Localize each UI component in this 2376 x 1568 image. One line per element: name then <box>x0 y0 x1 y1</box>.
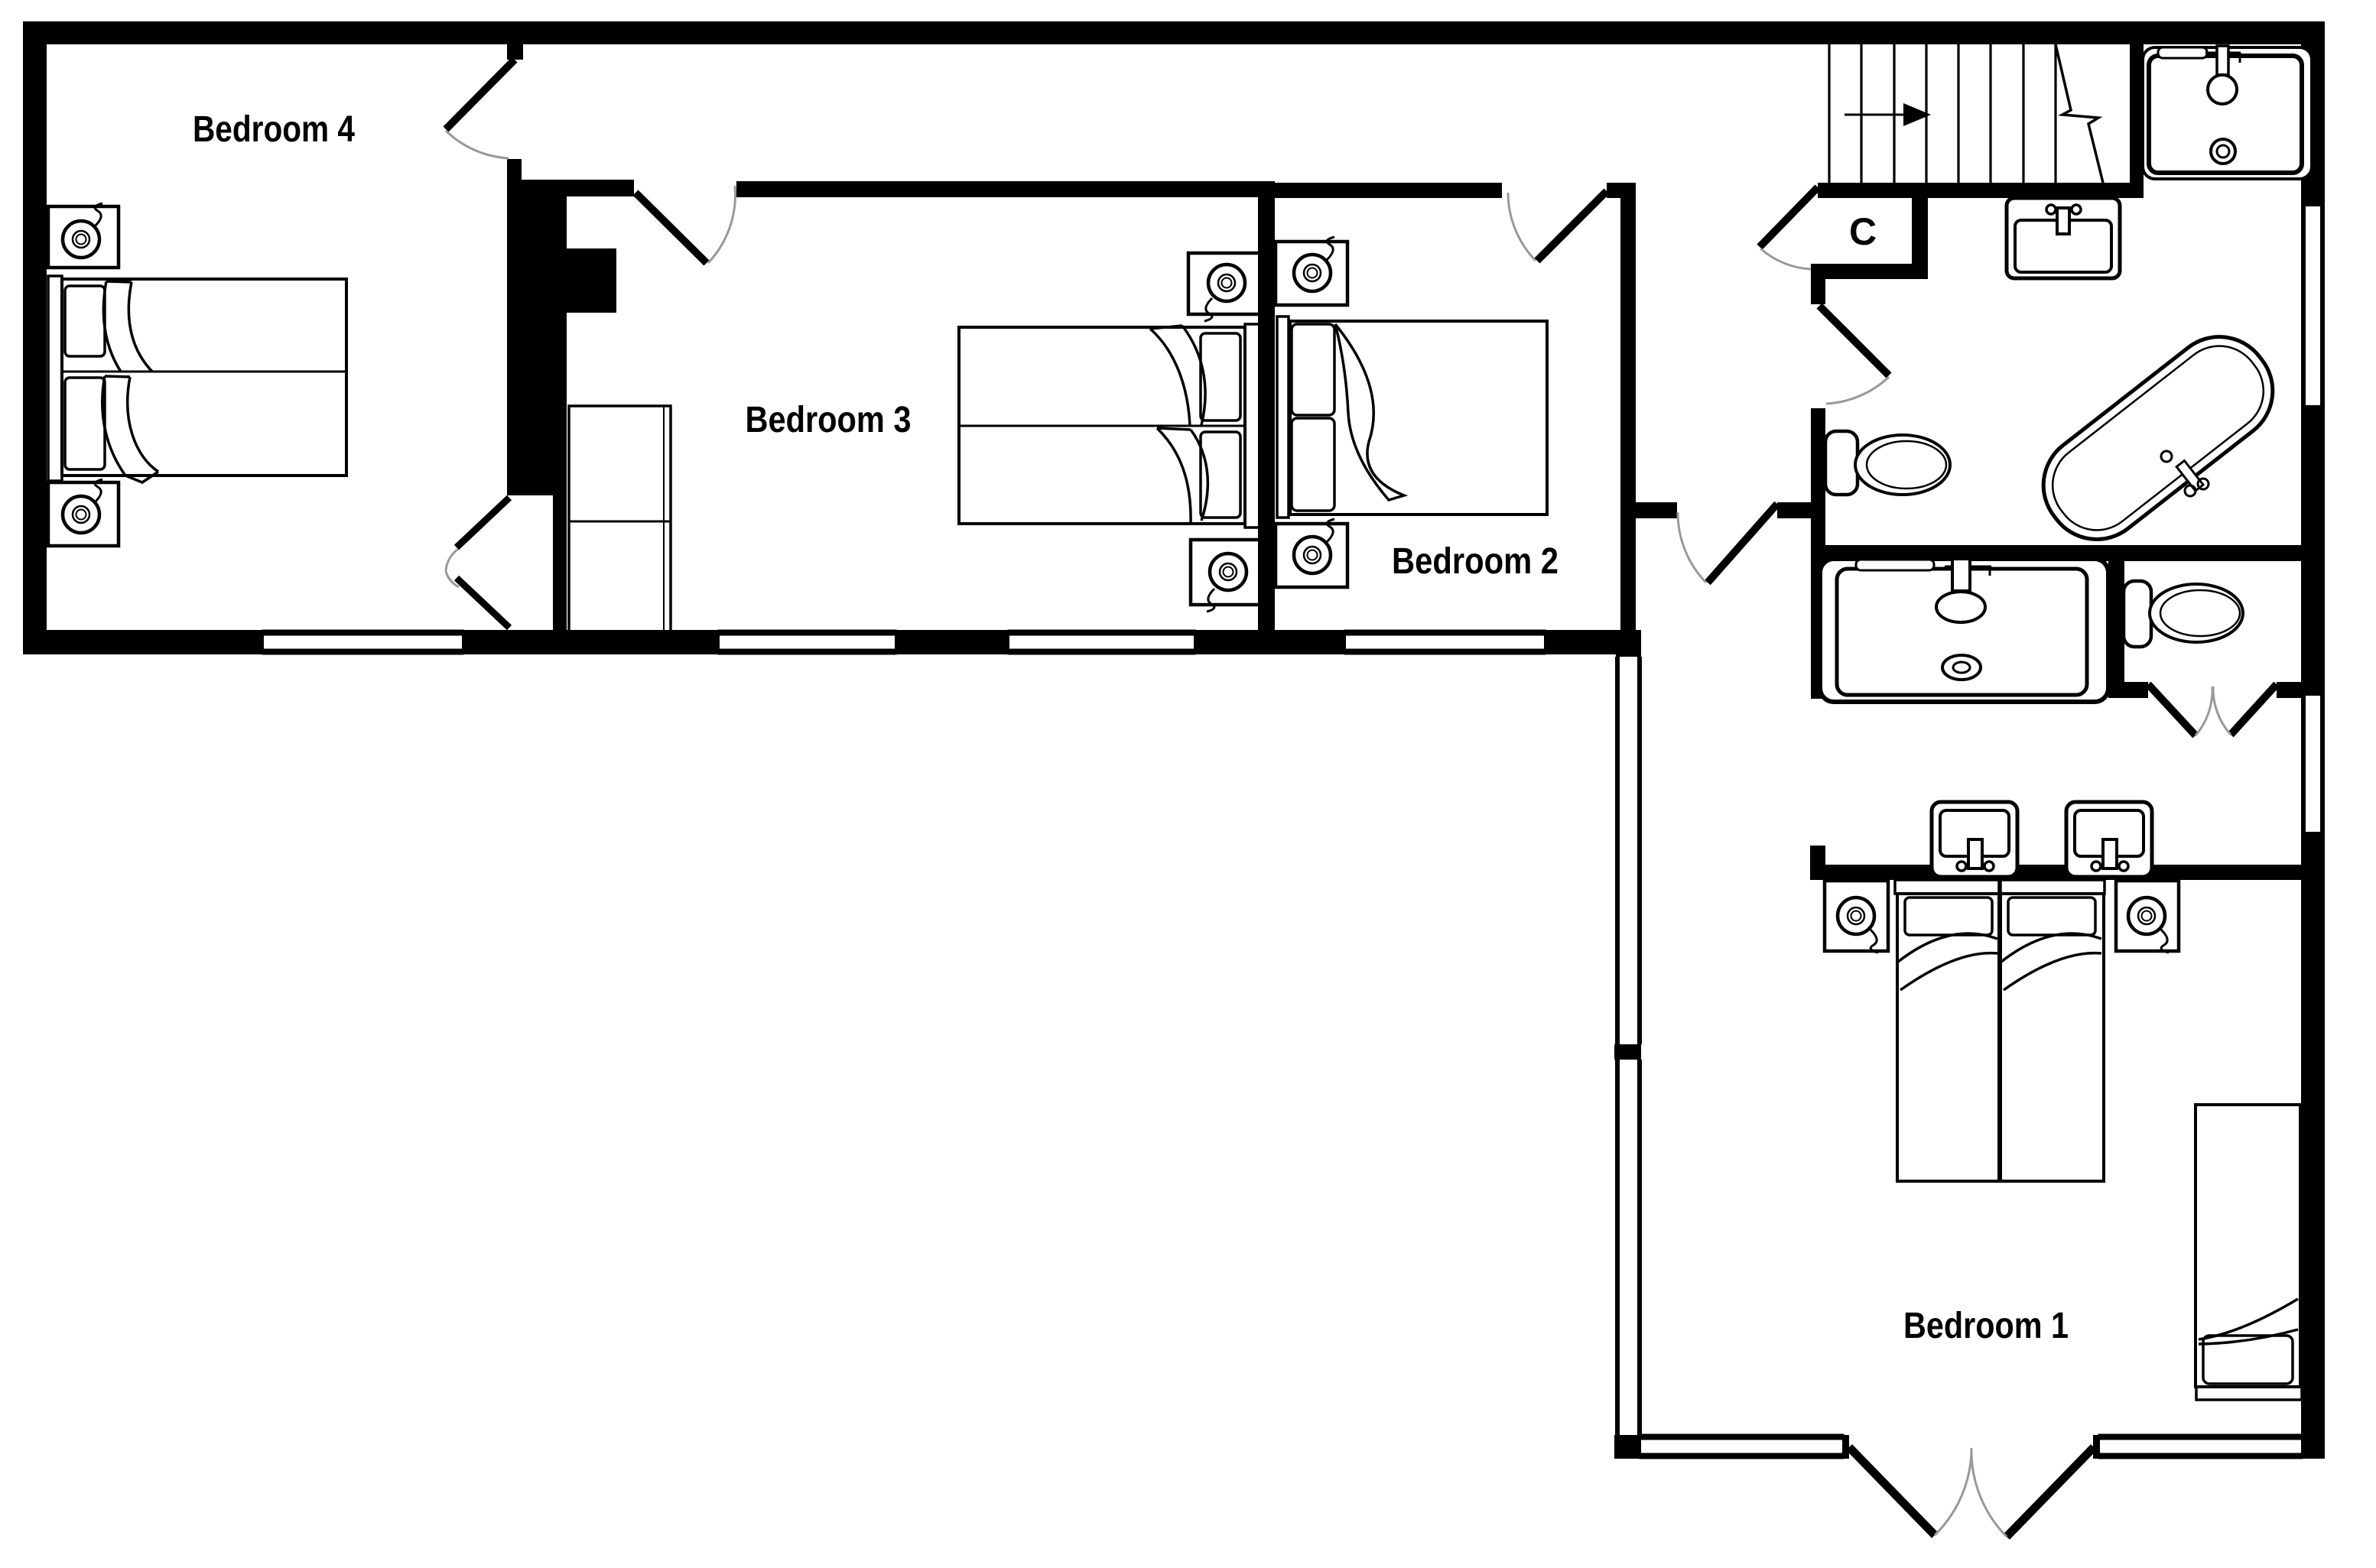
svg-text:Bedroom 2: Bedroom 2 <box>1392 541 1559 582</box>
svg-text:C: C <box>1849 210 1877 253</box>
svg-text:Bedroom 1: Bedroom 1 <box>1903 1306 2069 1346</box>
svg-text:Bedroom 3: Bedroom 3 <box>746 400 912 440</box>
svg-text:Bedroom 4: Bedroom 4 <box>193 109 355 150</box>
